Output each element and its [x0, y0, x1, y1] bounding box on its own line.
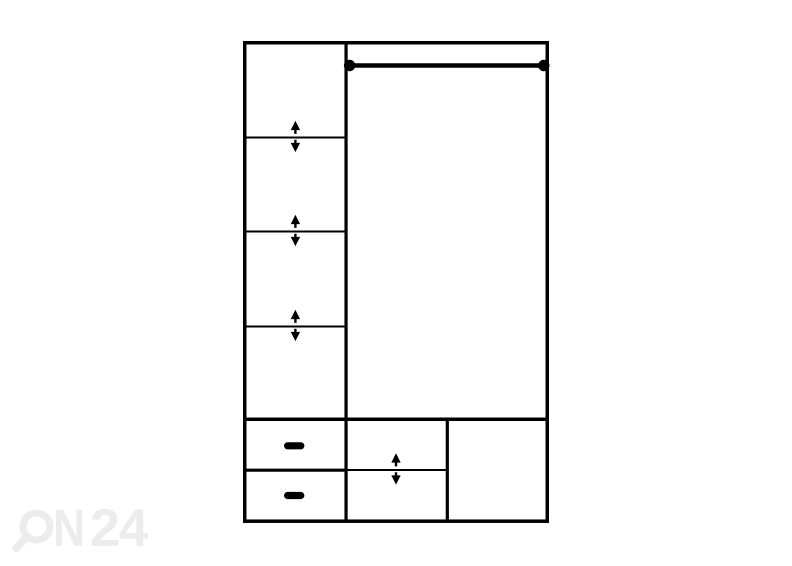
svg-text:N: N — [53, 498, 85, 557]
svg-text:2: 2 — [90, 498, 121, 557]
svg-text:4: 4 — [119, 498, 148, 557]
